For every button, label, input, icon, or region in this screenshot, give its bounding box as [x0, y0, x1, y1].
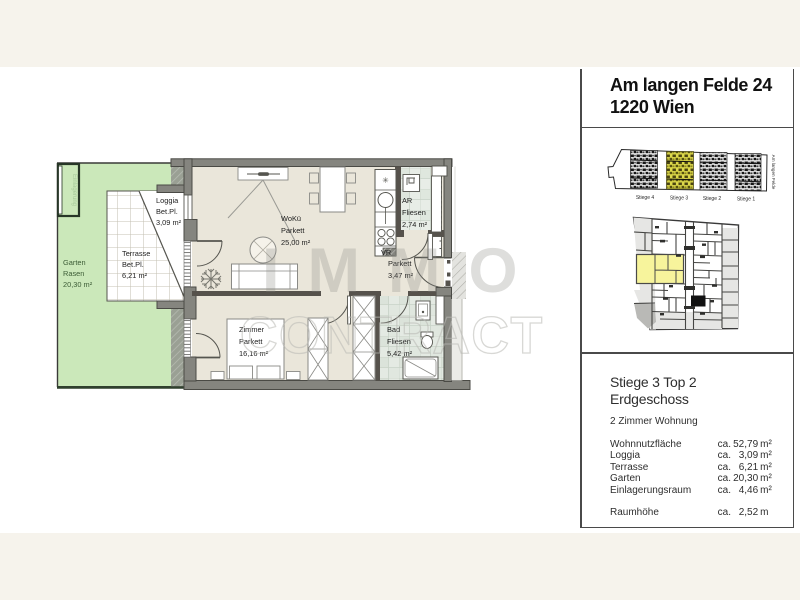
svg-text:AR: AR [402, 196, 412, 205]
svg-text:Fliesen: Fliesen [402, 208, 426, 217]
svg-text:20,30 m²: 20,30 m² [63, 280, 93, 289]
svg-text:Loggia: Loggia [156, 196, 179, 205]
svg-text:Bet.Pl.: Bet.Pl. [156, 207, 178, 216]
svg-text:Terrasse: Terrasse [122, 249, 150, 258]
svg-text:Bet.Pl.: Bet.Pl. [122, 260, 144, 269]
svg-text:Rasen: Rasen [63, 269, 84, 278]
svg-text:Stiege 3: Stiege 3 [670, 196, 689, 202]
svg-text:Stiege 4: Stiege 4 [636, 195, 655, 201]
svg-text:IMMO: IMMO [262, 236, 545, 306]
svg-text:Parkett: Parkett [281, 226, 304, 235]
svg-text:Garten: Garten [63, 258, 86, 267]
svg-text:Stiege 1: Stiege 1 [737, 197, 756, 203]
svg-text:6,21 m²: 6,21 m² [122, 271, 148, 280]
svg-text:Einlagerung: Einlagerung [71, 174, 77, 206]
svg-text:CONTRACT: CONTRACT [240, 307, 544, 365]
svg-text:Am langen Felde: Am langen Felde [771, 155, 776, 190]
svg-text:2,74 m²: 2,74 m² [402, 220, 428, 229]
svg-text:3,09 m²: 3,09 m² [156, 218, 182, 227]
svg-text:Stiege 2: Stiege 2 [703, 196, 722, 202]
svg-text:✳: ✳ [382, 176, 389, 185]
svg-text:WoKü: WoKü [281, 214, 301, 223]
